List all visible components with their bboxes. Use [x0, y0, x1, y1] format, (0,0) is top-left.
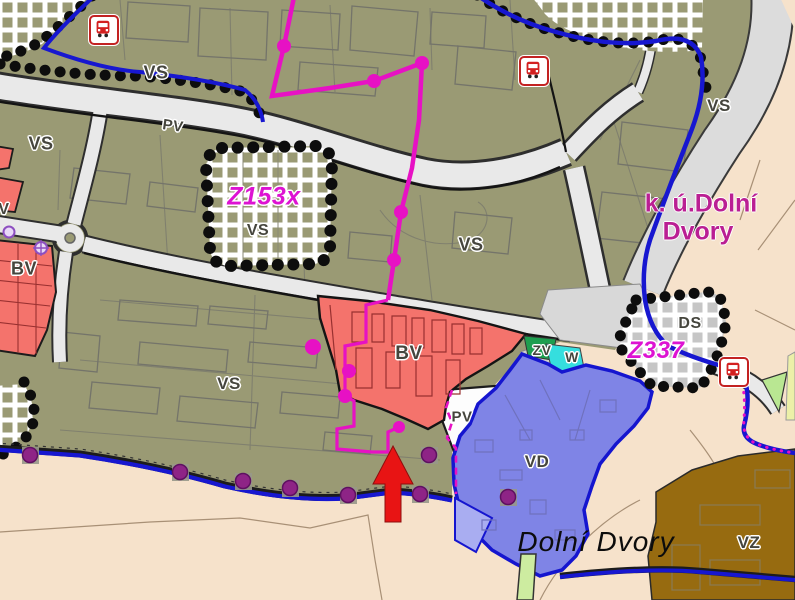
map-graphics — [0, 0, 795, 600]
bus-glyph — [722, 360, 744, 382]
yellow-strip — [786, 352, 795, 420]
bus-stop-icon — [719, 357, 749, 387]
bus-glyph — [522, 59, 544, 81]
zoning-map-canvas[interactable]: VS VS VS VS VS VS BV BV PV PV VD VZ DS Z… — [0, 0, 795, 600]
green-strip — [517, 554, 536, 600]
bus-glyph — [92, 18, 114, 40]
hatch-z153x — [206, 146, 332, 266]
bus-stop-icon — [89, 15, 119, 45]
roundabout-island — [65, 233, 75, 243]
bus-stop-icon — [519, 56, 549, 86]
